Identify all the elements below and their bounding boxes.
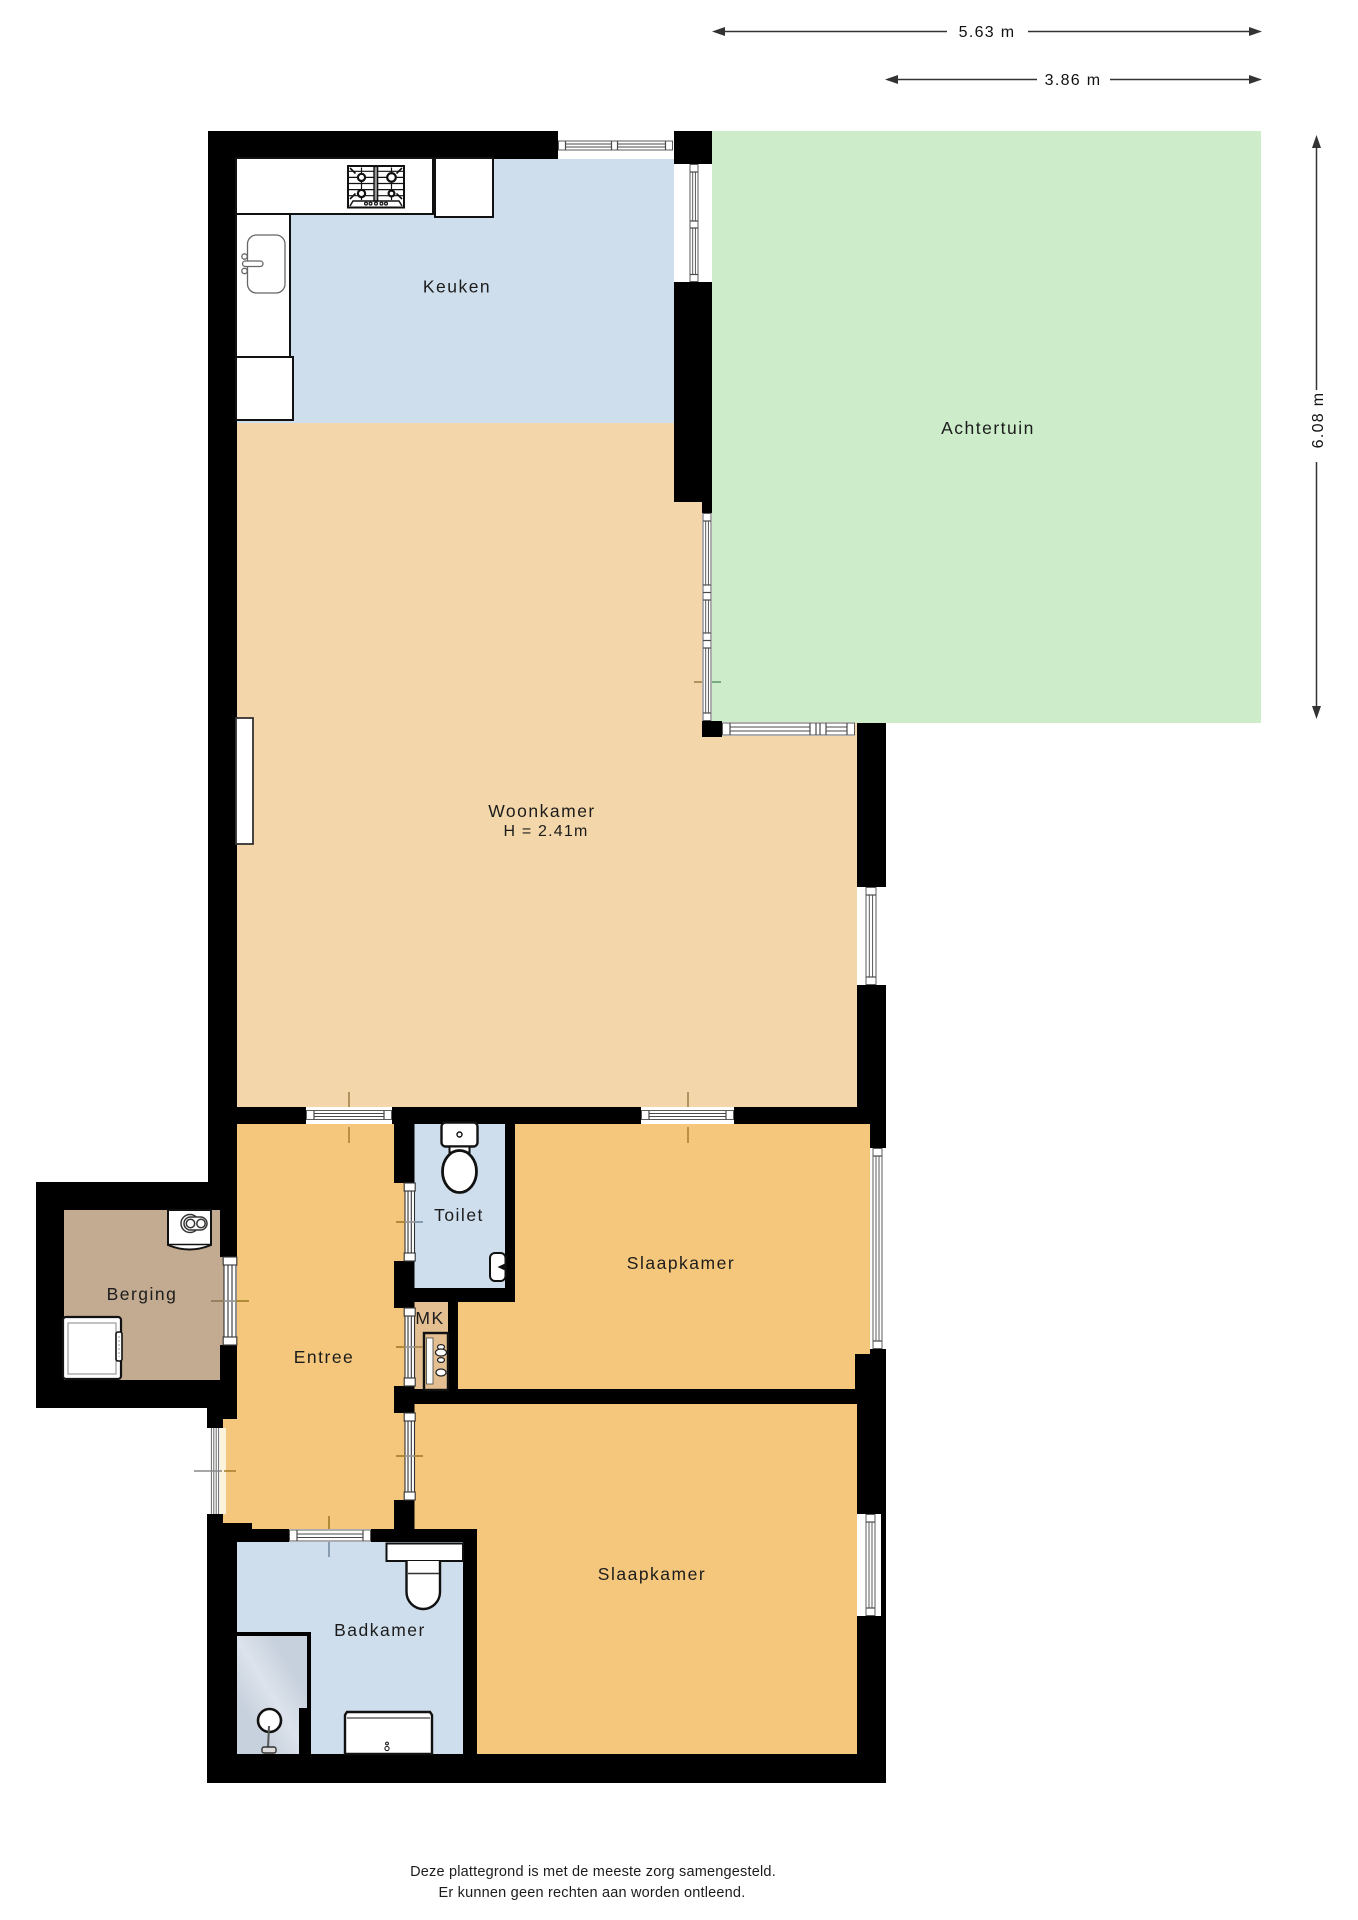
svg-text:Badkamer: Badkamer [334, 1620, 426, 1640]
svg-text:MK: MK [415, 1308, 444, 1328]
svg-text:Woonkamer: Woonkamer [488, 801, 596, 821]
svg-text:5.63 m: 5.63 m [959, 24, 1016, 41]
svg-text:Slaapkamer: Slaapkamer [627, 1253, 735, 1273]
svg-text:H = 2.41m: H = 2.41m [503, 823, 588, 840]
svg-text:Keuken: Keuken [423, 277, 491, 297]
svg-text:Deze plattegrond is met de mee: Deze plattegrond is met de meeste zorg s… [410, 1864, 776, 1880]
svg-text:Achtertuin: Achtertuin [941, 418, 1035, 438]
svg-text:3.86 m: 3.86 m [1045, 72, 1102, 89]
svg-text:Entree: Entree [294, 1347, 355, 1367]
svg-text:Slaapkamer: Slaapkamer [598, 1564, 706, 1584]
svg-text:Toilet: Toilet [434, 1205, 484, 1225]
svg-text:Er kunnen geen rechten aan wor: Er kunnen geen rechten aan worden ontlee… [439, 1885, 746, 1901]
svg-text:6.08 m: 6.08 m [1310, 392, 1327, 449]
svg-text:Berging: Berging [107, 1284, 178, 1304]
